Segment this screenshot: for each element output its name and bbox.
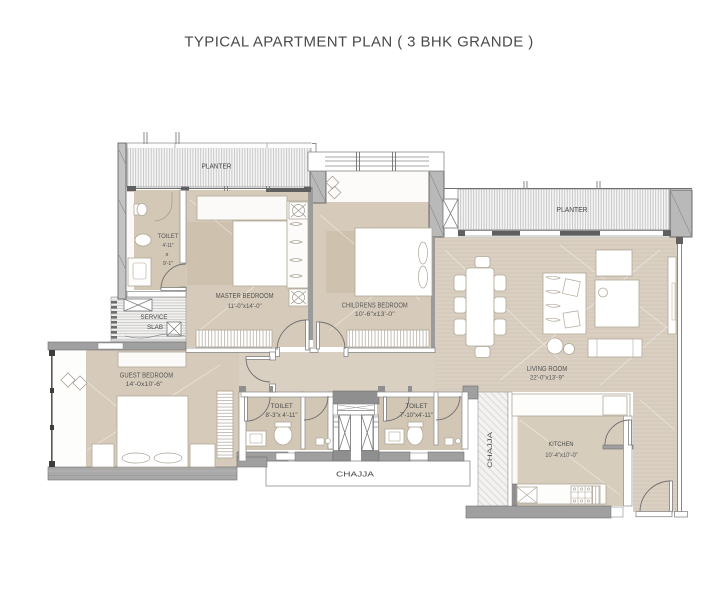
svg-text:7'-10"x4'-11": 7'-10"x4'-11": [400, 412, 433, 419]
svg-text:SERVICE: SERVICE: [141, 314, 169, 321]
svg-text:PLANTER: PLANTER: [202, 162, 233, 171]
svg-text:4'-11": 4'-11": [163, 243, 174, 249]
svg-text:CHAJJA: CHAJJA: [487, 431, 494, 468]
svg-text:TOILET: TOILET: [405, 403, 427, 410]
svg-text:14'-0x10'-6": 14'-0x10'-6": [126, 381, 163, 388]
svg-text:LIVING ROOM: LIVING ROOM: [527, 364, 568, 373]
svg-text:10'-4"x10'-0": 10'-4"x10'-0": [545, 452, 578, 459]
svg-text:TOILET: TOILET: [158, 233, 179, 240]
svg-text:TOILET: TOILET: [271, 403, 293, 410]
svg-text:10'-6"x13'-0": 10'-6"x13'-0": [355, 311, 395, 318]
svg-text:22'-0"x13'-9": 22'-0"x13'-9": [530, 375, 564, 382]
svg-text:8'-3"x 4'-11": 8'-3"x 4'-11": [266, 412, 298, 419]
svg-text:SLAB: SLAB: [147, 324, 164, 331]
svg-text:GUEST BEDROOM: GUEST BEDROOM: [120, 371, 174, 380]
svg-text:CHILDRENS BEDROOM: CHILDRENS BEDROOM: [342, 300, 408, 309]
svg-text:TYPICAL APARTMENT PLAN ( 3 BHK: TYPICAL APARTMENT PLAN ( 3 BHK GRANDE ): [184, 34, 533, 51]
svg-text:CHAJJA: CHAJJA: [336, 472, 374, 479]
svg-text:MASTER BEDROOM: MASTER BEDROOM: [216, 291, 274, 300]
svg-text:x: x: [166, 252, 169, 258]
svg-text:KITCHEN: KITCHEN: [549, 441, 574, 448]
svg-text:11'-0"x14'-0": 11'-0"x14'-0": [228, 303, 262, 310]
svg-text:9'-1": 9'-1": [163, 261, 173, 267]
svg-text:PLANTER: PLANTER: [557, 205, 589, 214]
